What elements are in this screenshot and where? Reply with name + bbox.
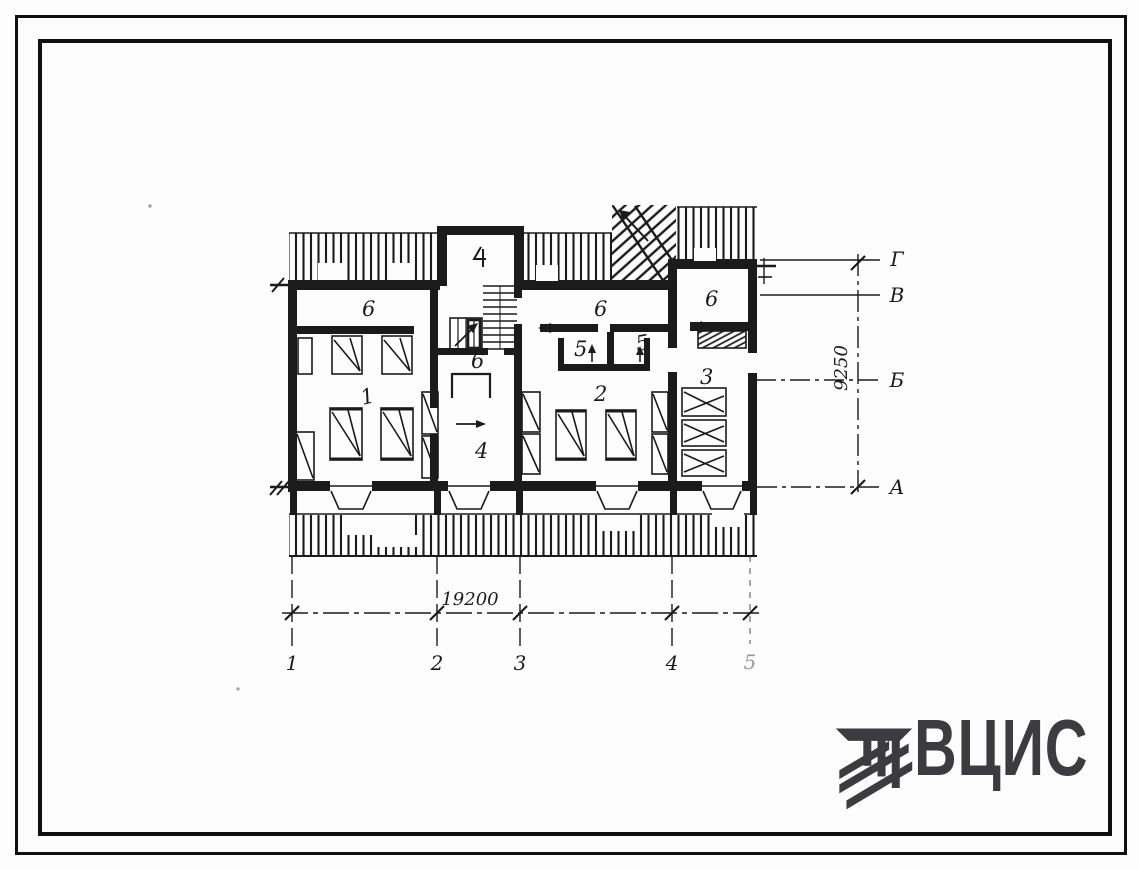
axis-label: 5 bbox=[744, 650, 757, 674]
axis-label: 2 bbox=[430, 651, 444, 675]
hatched-beam-mark-icon bbox=[834, 722, 914, 814]
door-swing-arrow-icon bbox=[476, 420, 486, 428]
room-label: 3 bbox=[700, 365, 713, 389]
scan-speck bbox=[236, 687, 239, 690]
axis-label: 4 bbox=[665, 651, 679, 675]
bottom-axis-grid: 19200 1 2 3 4 5 bbox=[276, 556, 766, 679]
balcony-hatch-top-right bbox=[677, 207, 757, 259]
axis-label: 3 bbox=[514, 651, 527, 675]
room-label: 2 bbox=[593, 382, 607, 406]
axis-label: В bbox=[889, 283, 905, 307]
vcis-logo-text: ВЦИС bbox=[914, 708, 1088, 788]
room-label: 1 bbox=[358, 383, 377, 410]
right-axis-grid: 9250 Г В Б А bbox=[756, 243, 913, 503]
room-label: 6 bbox=[705, 287, 718, 311]
room-label: 5 bbox=[574, 337, 587, 361]
room-label: 6 bbox=[362, 297, 375, 321]
room-label: 5 bbox=[634, 330, 651, 356]
dimension-text-vertical: 9250 bbox=[831, 345, 852, 391]
drawing-sheet: 6 6 6 6 5 5 3 1 2 4 19200 bbox=[0, 0, 1139, 869]
vcis-logo: ВЦИС bbox=[834, 716, 1139, 814]
room-labels: 6 6 6 6 5 5 3 1 2 4 bbox=[358, 287, 718, 463]
room-label: 4 bbox=[474, 439, 488, 463]
scan-speck bbox=[148, 204, 151, 207]
room-label: 6 bbox=[471, 349, 484, 373]
axis-label: Г bbox=[889, 247, 904, 271]
room-label: 6 bbox=[594, 297, 607, 321]
axis-label: 1 bbox=[286, 651, 299, 675]
axis-label: А bbox=[887, 475, 904, 499]
exterior-stair-wedge bbox=[612, 205, 676, 282]
balcony-hatch-top-left bbox=[289, 233, 437, 283]
axis-label: Б bbox=[889, 368, 905, 392]
dimension-text-horizontal: 19200 bbox=[441, 589, 498, 610]
